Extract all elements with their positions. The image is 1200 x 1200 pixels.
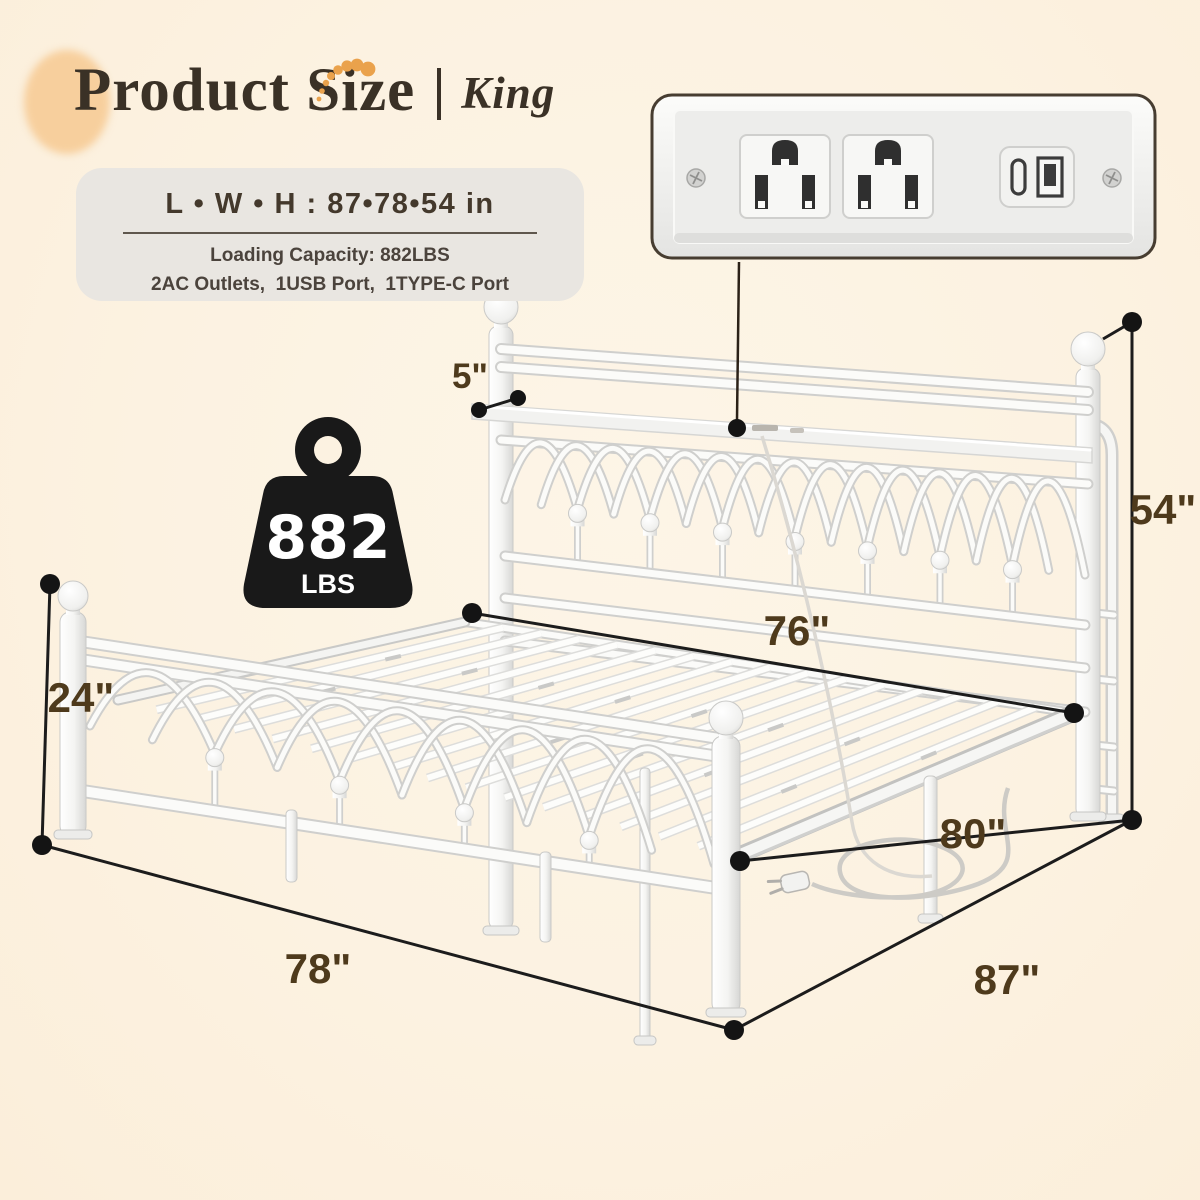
dim-frame-width: 78": [285, 945, 352, 993]
dim-side-length: 80": [940, 810, 1007, 858]
screw-icon: [687, 169, 705, 187]
screw-icon: [1103, 169, 1121, 187]
ac-outlet-icon: [843, 135, 933, 218]
loading-capacity-text: Loading Capacity: 882LBS: [76, 242, 584, 271]
usb-a-icon: [1038, 158, 1062, 196]
ac-outlet-icon: [740, 135, 830, 218]
size-variant-label: King: [461, 67, 555, 119]
dimensions-summary: L • W • H : 87•78•54 in: [76, 188, 584, 221]
dim-slat-width: 76": [764, 607, 831, 655]
panel-bevel: [674, 233, 1133, 243]
weight-icon: 882 LBS: [240, 412, 416, 618]
ports-text: 2AC Outlets, 1USB Port, 1TYPE-C Port: [76, 271, 584, 300]
dim-total-length: 87": [974, 956, 1041, 1004]
usb-module: [1000, 147, 1074, 207]
dim-footboard-height: 24": [48, 674, 115, 722]
title-divider-bar: [437, 68, 441, 120]
weight-value: 882: [265, 503, 390, 573]
charging-station-panel: [650, 93, 1157, 260]
weight-unit: LBS: [301, 569, 355, 599]
dim-shelf-depth: 5": [452, 357, 488, 397]
sparkle-dots-icon: [310, 54, 382, 106]
card-divider: [123, 232, 537, 234]
dim-total-height: 54": [1130, 486, 1197, 534]
spec-card: L • W • H : 87•78•54 in Loading Capacity…: [76, 168, 584, 301]
